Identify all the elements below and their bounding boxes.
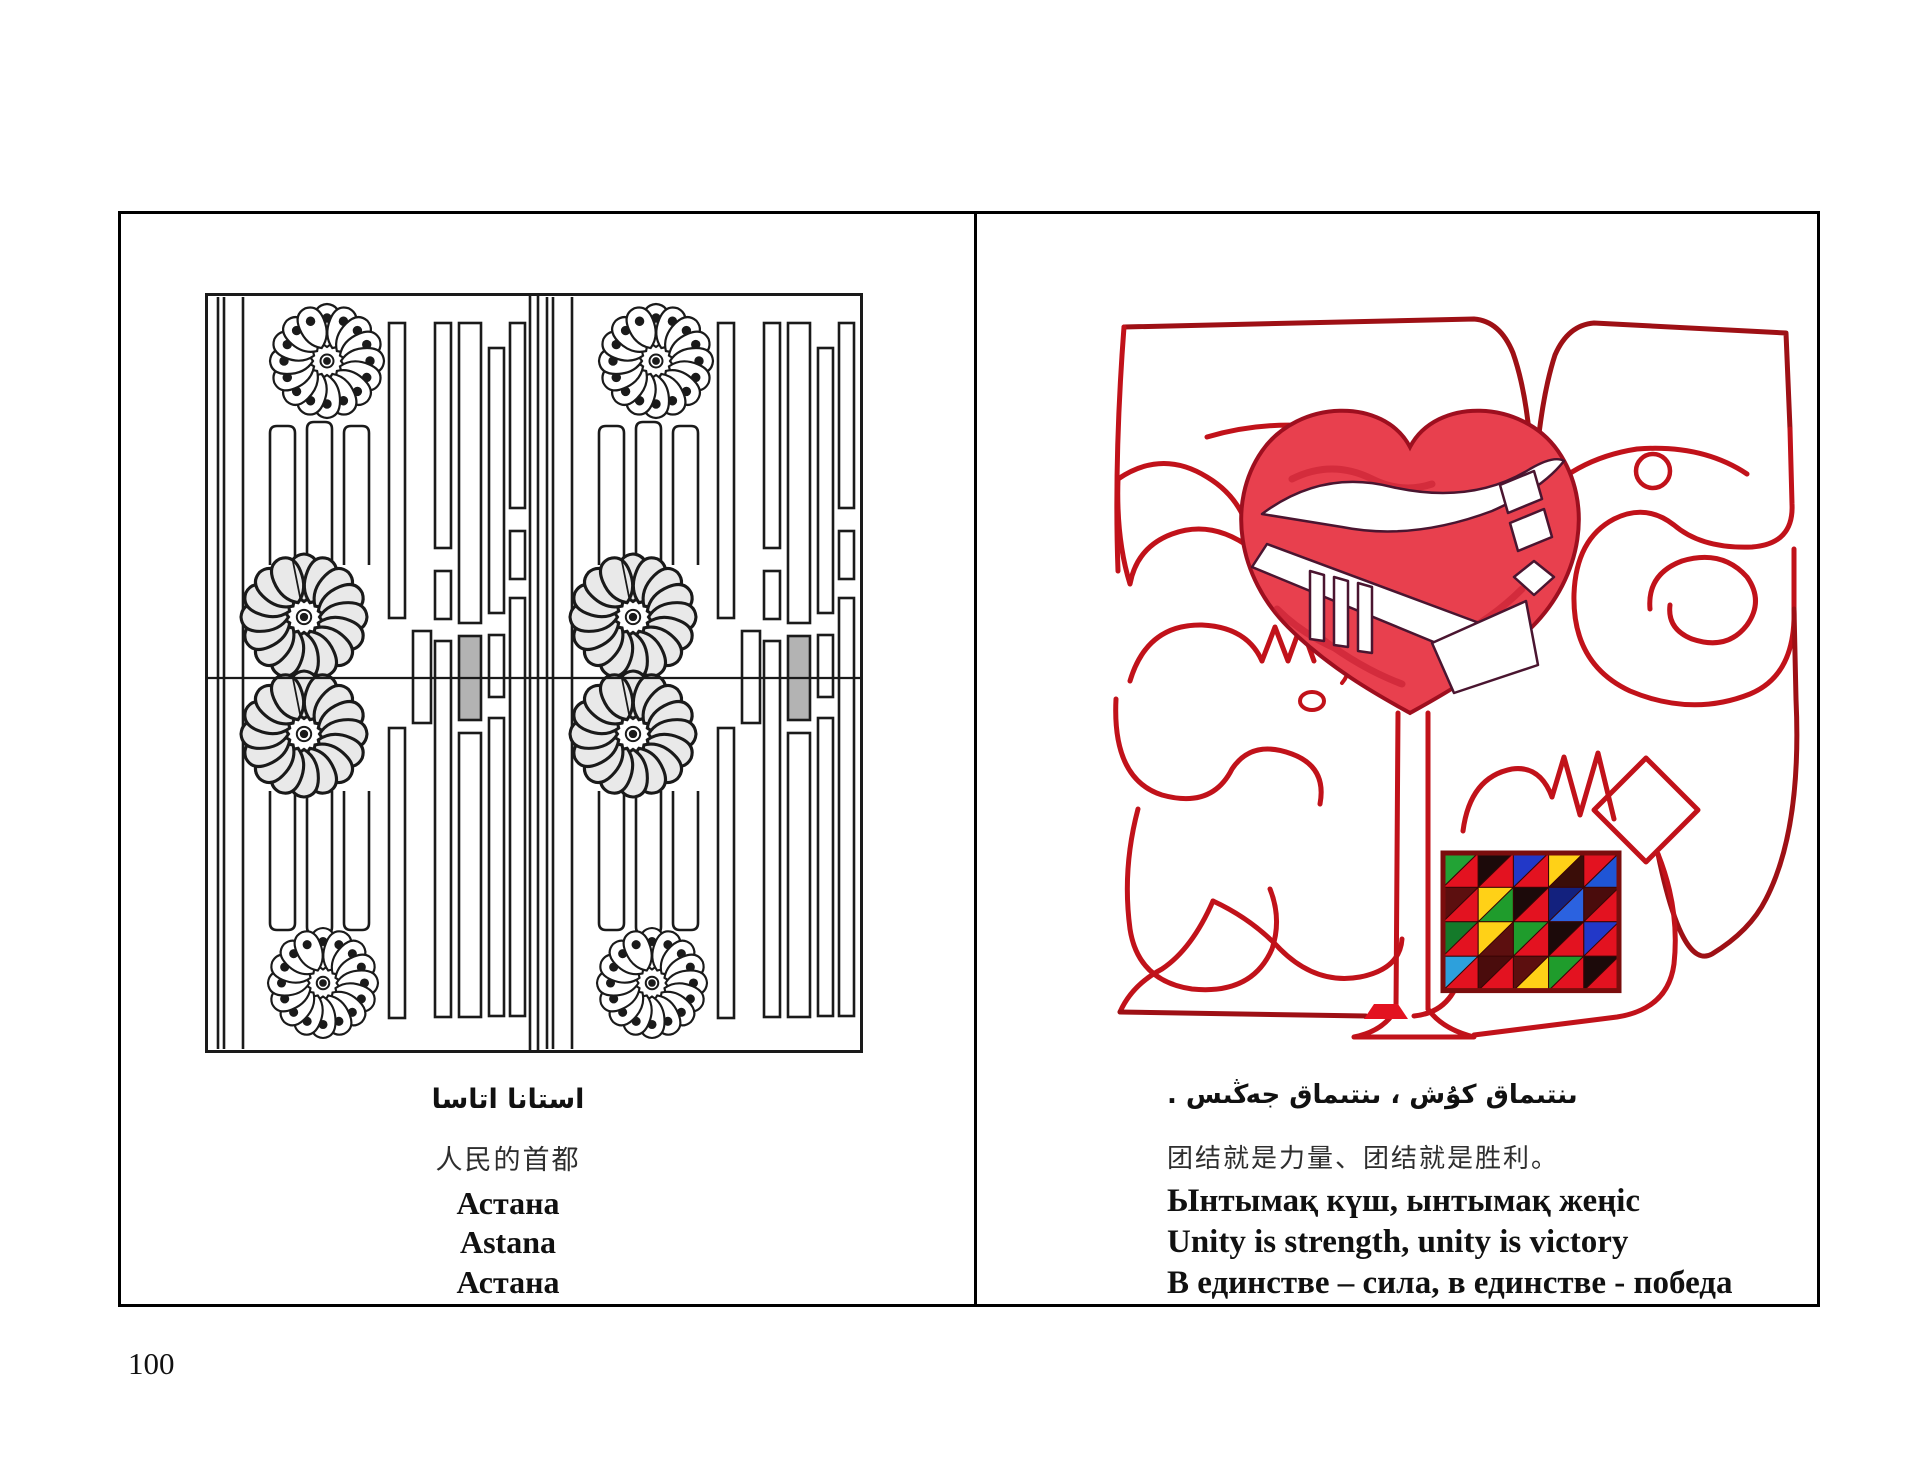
right-caption-chinese: 团结就是力量、团结就是胜利。 — [1167, 1145, 1559, 1174]
calligraphy-artwork — [1102, 309, 1802, 1079]
base-trapezoid — [1364, 1004, 1408, 1019]
rosette-dotted-icon — [267, 927, 378, 1038]
rosette-shaded-icon — [240, 553, 367, 680]
ornament-drawing — [205, 293, 863, 1053]
left-caption-chinese: 人民的首都 — [121, 1146, 895, 1176]
rosette-dotted-icon — [269, 303, 384, 418]
heart-stem — [1396, 713, 1428, 1009]
left-caption-russian: Астана — [121, 1265, 895, 1300]
qaf-letter — [1574, 429, 1794, 705]
right-caption-arabic: ىنتىماق كۇش ، ىنتىماق جەڭىس . — [1167, 1081, 1578, 1110]
left-caption-kazakh: Астана — [121, 1186, 895, 1221]
page-number: 100 — [128, 1346, 175, 1382]
left-caption-latin: Astana — [121, 1225, 895, 1260]
book-page: استانا اتاسا 人民的首都 Астана Astana Астана — [0, 0, 1930, 1480]
right-caption-english: Unity is strength, unity is victory — [1167, 1224, 1628, 1260]
mosaic-grid — [1443, 853, 1619, 991]
right-caption-russian: В единстве – сила, в единстве - победа — [1167, 1265, 1733, 1301]
heart-shape — [1241, 411, 1579, 713]
qaf-dot-icon — [1636, 454, 1670, 488]
left-panel: استانا اتاسا 人民的首都 Астана Astana Астана — [121, 214, 977, 1304]
right-caption-kazakh: Ынтымақ күш, ынтымақ жеңіс — [1167, 1183, 1640, 1219]
right-panel: ىنتىماق كۇش ، ىنتىماق جەڭىس . 团结就是力量、团结就… — [977, 214, 1817, 1304]
panel-frame: استانا اتاسا 人民的首都 Астана Astana Астана — [118, 211, 1820, 1307]
left-caption-arabic: استانا اتاسا — [121, 1085, 895, 1115]
rosette-shaded-icon — [240, 670, 367, 797]
